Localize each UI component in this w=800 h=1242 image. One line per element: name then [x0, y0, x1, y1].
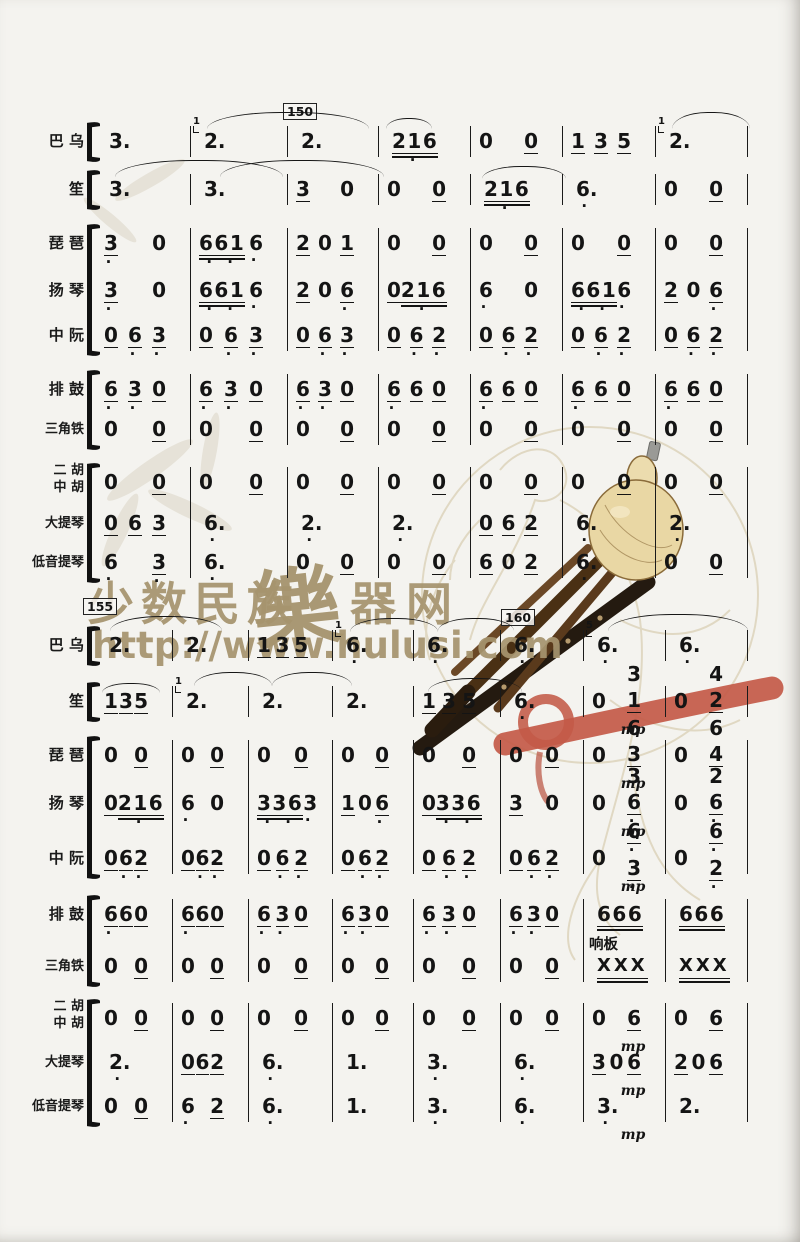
octave-dots: · — [226, 351, 237, 357]
staff-row-datiqin: 0636.·2.·2.·0626.·2.· — [95, 512, 747, 542]
staff-bracket — [87, 740, 92, 874]
measure: 064 — [665, 744, 747, 774]
note-token: 6 — [196, 903, 210, 927]
note-value: 0 — [502, 551, 516, 573]
note-part: 1 — [627, 689, 641, 713]
octave-dots: · — [136, 874, 147, 880]
note-token: 0 — [422, 955, 436, 977]
note-token: 0 — [592, 690, 606, 712]
note-value: 2. — [109, 634, 131, 656]
note-token: 3· — [442, 903, 456, 936]
octave-dots: · — [481, 304, 492, 310]
note-token: 0 — [432, 378, 446, 402]
note-value: 2 — [664, 279, 678, 303]
note-value: 2 — [294, 847, 308, 871]
note-value: 0 — [387, 279, 401, 303]
barline — [500, 740, 501, 874]
note-value: 1. — [346, 1051, 368, 1073]
barline — [562, 467, 563, 578]
note-part: 0 — [422, 744, 436, 766]
note-part: 0 — [181, 955, 195, 977]
note-value: 666 — [679, 903, 725, 927]
measure: 00 — [378, 471, 470, 501]
note-token: 0 — [104, 792, 118, 816]
note-token: 2. — [262, 690, 284, 712]
octave-dots: · — [511, 930, 522, 936]
note-part: 216· — [484, 178, 530, 211]
octave-dots: · — [106, 259, 117, 265]
note-token: 0 — [432, 471, 446, 495]
note-part: 2· — [524, 324, 538, 357]
note-value: 0 — [296, 418, 310, 440]
note-part: 0 — [358, 792, 372, 814]
note-part: 0 — [664, 418, 678, 440]
note-token: 0 — [422, 1007, 436, 1029]
note-part: 6.· — [679, 634, 701, 665]
instrument-label-diyintiqin: 低音提琴 — [14, 1098, 84, 1115]
measure: 3. — [190, 178, 287, 208]
note-part: 0 — [709, 232, 723, 256]
note-part: 2.· — [301, 512, 323, 543]
note-value: 0 — [479, 130, 493, 152]
note-value: 2 — [210, 1095, 224, 1119]
instrument-label-zhongruan: 中 阮 — [14, 327, 84, 344]
note-value: 0 — [104, 512, 118, 536]
instrument-label-pipa: 琵 琶 — [14, 747, 84, 764]
note-value: 6 — [181, 1095, 195, 1117]
note-value: 1. — [346, 1095, 368, 1117]
octave-dots: · — [183, 930, 194, 936]
note-part: 6 — [410, 378, 424, 402]
measure: 6·3·0 — [287, 378, 378, 408]
measure: 661· ·6· — [190, 232, 287, 262]
note-value: 1 — [422, 690, 436, 714]
measure: 00 — [655, 232, 747, 262]
note-value: 6 — [479, 279, 493, 301]
note-value: 2 — [432, 324, 446, 348]
note-value: 6 — [687, 324, 701, 348]
note-value: 6 — [296, 378, 310, 402]
note-value: 3 — [509, 792, 523, 816]
note-part: 0 — [387, 232, 401, 254]
note-token: 6· — [571, 378, 585, 411]
barline — [287, 126, 288, 157]
note-part: 0 — [687, 279, 701, 301]
note-value: 6 — [571, 378, 585, 402]
measure: 306mp — [583, 1051, 665, 1081]
note-part: XXX — [597, 955, 648, 979]
note-value: 3 — [276, 903, 290, 927]
measure: 2. — [95, 634, 172, 664]
note-part: 0 — [340, 418, 354, 442]
note-part: 3 — [594, 130, 608, 154]
note-token: 3 — [509, 792, 523, 816]
note-token: 0 — [181, 1051, 195, 1075]
note-token: 0 — [617, 471, 631, 495]
note-part: 0 — [257, 847, 271, 871]
note-part: 5 — [294, 634, 308, 658]
note-value: 0 — [375, 903, 389, 927]
note-token: 0 — [509, 955, 523, 977]
note-token: 0 — [210, 903, 224, 927]
instrument-label-sheng: 笙 — [14, 693, 84, 710]
note-value: 0 — [509, 955, 523, 977]
measure: 00 — [248, 955, 332, 985]
note-value: XXX — [679, 955, 730, 979]
measure: 00 — [172, 744, 248, 774]
note-token: 3· — [303, 792, 317, 823]
note-token: 0 — [375, 1007, 389, 1031]
note-part: 0 — [134, 1007, 148, 1031]
note-part: 0 — [199, 324, 213, 348]
note-part: 0 — [664, 178, 678, 200]
note-value: 0 — [432, 232, 446, 256]
note-value: 0 — [674, 690, 688, 712]
note-part: 0 — [249, 471, 263, 495]
note-value: 0 — [134, 1007, 148, 1031]
note-token: 0 — [571, 418, 585, 440]
note-value: 3. — [109, 178, 131, 200]
note-value: 3 — [128, 378, 142, 402]
note-value: 6. — [576, 551, 598, 573]
note-token: 6 — [479, 551, 493, 575]
note-value: 2 — [524, 512, 538, 536]
octave-dots: · — [251, 257, 262, 263]
note-part: 2.· — [392, 512, 414, 543]
note-value: 0 — [709, 418, 723, 442]
note-token: 3 — [119, 690, 133, 714]
measure: 00 — [655, 471, 747, 501]
measure: 00 — [332, 744, 413, 774]
note-value: 0 — [387, 324, 401, 348]
note-token: 0 — [181, 955, 195, 977]
note-part: 2· — [709, 324, 723, 357]
note-token: 6· — [442, 847, 456, 880]
note-part: 0 — [479, 418, 493, 440]
octave-dots: · — [547, 874, 558, 880]
note-value: 0 — [571, 418, 585, 440]
instrument-label-sheng: 笙 — [14, 181, 84, 198]
note-value: 0 — [617, 471, 631, 495]
note-value: 1 — [627, 689, 641, 713]
instrument-label-datiqin: 大提琴 — [14, 515, 84, 532]
note-token: 0 — [296, 471, 310, 493]
note-token: 0 — [709, 378, 723, 402]
octave-dots: · — [619, 304, 630, 310]
note-token: 0 — [524, 418, 538, 442]
note-part: 0 — [674, 1007, 688, 1029]
octave-dots: · — [209, 537, 220, 543]
tie-arc — [672, 112, 750, 129]
note-value: 2 — [210, 1051, 224, 1075]
note-value: 6 — [509, 903, 523, 927]
note-part: 0 — [432, 178, 446, 202]
grace-hook — [175, 686, 181, 693]
note-part: 6· — [709, 279, 723, 312]
note-part: 3· — [152, 551, 166, 584]
octave-dots: · — [201, 405, 212, 411]
note-part: 0 — [152, 418, 166, 442]
note-token: 0 — [422, 847, 436, 871]
note-token: 1. — [346, 1095, 368, 1117]
measure: 06·3·mp — [583, 847, 665, 877]
note-value: 0 — [610, 1051, 624, 1073]
note-part: 2· — [134, 847, 148, 880]
note-part: 0 — [104, 418, 118, 440]
note-value: 0 — [709, 378, 723, 402]
note-part: 0 — [375, 903, 389, 927]
note-part: 0 — [210, 955, 224, 979]
note-value: 0 — [134, 744, 148, 768]
note-part: 6 — [627, 1051, 641, 1075]
note-token: 6· — [318, 324, 332, 357]
barline — [747, 740, 748, 874]
note-part: 3· — [152, 324, 166, 357]
note-part: 0 — [509, 847, 523, 871]
note-part: 0 — [571, 232, 585, 254]
note-token: 6.· — [576, 512, 598, 543]
measure: 062 — [172, 1051, 248, 1081]
octave-dots: · — [419, 306, 430, 312]
note-value: 3 — [627, 663, 641, 685]
note-token: 42 — [709, 690, 723, 713]
note-value: 216 — [484, 178, 530, 202]
note-part: 3 — [119, 690, 133, 714]
note-value: 2 — [709, 765, 723, 787]
note-part: 336· · — [436, 792, 482, 825]
note-token: 0 — [104, 418, 118, 440]
measure: 6.· — [248, 1051, 332, 1081]
measure: 00 — [655, 551, 747, 581]
note-token: 6· — [249, 232, 263, 263]
note-part: 0 — [257, 955, 271, 977]
note-part: 0 — [617, 232, 631, 256]
note-value: 0 — [210, 792, 224, 814]
note-part: 6 — [119, 903, 133, 927]
note-token: 0 — [674, 744, 688, 766]
note-value: 2. — [301, 512, 323, 534]
note-value: 2. — [679, 1095, 701, 1117]
note-part: 6· — [664, 378, 678, 411]
note-part: 2 — [210, 1051, 224, 1075]
note-part: 0 — [341, 1007, 355, 1029]
instrument-label-paigu: 排 鼓 — [14, 906, 84, 923]
measure: 6.· — [562, 512, 655, 542]
note-token: 6· — [181, 903, 195, 936]
note-part: 0 — [134, 955, 148, 979]
grace-hook — [658, 126, 664, 133]
octave-dots: · — [432, 659, 443, 665]
note-value: 6 — [709, 1007, 723, 1031]
note-token: 2.1 — [186, 690, 208, 712]
octave-dots: · · — [578, 306, 610, 312]
note-token: 0 — [375, 744, 389, 768]
note-value: 0 — [592, 847, 606, 869]
note-value: XXX — [597, 955, 648, 979]
measure: 00 — [562, 232, 655, 262]
note-value: 6 — [594, 324, 608, 348]
note-part: 0 — [181, 847, 195, 871]
note-value: 0 — [104, 744, 118, 766]
note-value: 6 — [196, 1051, 210, 1075]
measure: 00 — [95, 1007, 172, 1037]
staff-bracket — [87, 228, 92, 351]
note-token: 3.· — [427, 1051, 449, 1082]
note-part: 0 — [294, 744, 308, 768]
note-token: 3· — [249, 324, 263, 357]
staff-row-zhongruan: 06·3·06·3·06·3·06·2·06·2·06·2·06·2· — [95, 324, 747, 354]
barline — [190, 174, 191, 205]
note-value: 0 — [296, 471, 310, 493]
staff-row-yangqin: 0216·6·0336· ·3·106·0336· ·30036·mp026· — [95, 792, 747, 822]
note-value: 0 — [152, 378, 166, 402]
note-part: 0 — [462, 955, 476, 979]
measure: 06·3· — [190, 324, 287, 354]
measure: 3.·mp — [583, 1095, 665, 1125]
note-token: 0 — [104, 1095, 118, 1117]
note-part: 2 — [210, 1095, 224, 1119]
note-token: 6.· — [204, 551, 226, 582]
note-value: 0 — [249, 418, 263, 442]
note-part: 3· — [340, 324, 354, 357]
note-value: 6 — [709, 820, 723, 844]
note-token: 0 — [432, 178, 446, 202]
note-value: 0 — [340, 418, 354, 442]
measure: 00 — [95, 418, 190, 448]
measure: 6·3·0 — [248, 903, 332, 933]
note-part: 0 — [296, 551, 310, 573]
measure: 6.·1 — [332, 634, 413, 664]
measure: 661· ·6· — [562, 279, 655, 309]
note-part: 6· — [358, 847, 372, 880]
note-value: 0 — [664, 232, 678, 254]
note-token: 0 — [709, 178, 723, 202]
note-part: 0 — [462, 903, 476, 927]
note-value: 0 — [296, 324, 310, 348]
note-token: 0 — [387, 551, 401, 573]
staff-row-datiqin: 2.·0626.·1.3.·6.·306mp206 — [95, 1051, 747, 1081]
barline — [287, 374, 288, 445]
measure: 00 — [172, 955, 248, 985]
note-part: 0 — [709, 551, 723, 575]
instrument-label-pipa: 琵 琶 — [14, 235, 84, 252]
note-value: 0 — [249, 471, 263, 495]
note-token: 0 — [341, 955, 355, 977]
note-token: 2 — [210, 1095, 224, 1119]
note-value: 0 — [340, 378, 354, 402]
note-token: 0 — [509, 1007, 523, 1029]
note-value: 1 — [104, 690, 118, 714]
measure: 336· ·3· — [248, 792, 332, 822]
note-part: 6.· — [427, 634, 449, 665]
note-value: 0 — [571, 324, 585, 348]
note-token: 0 — [104, 512, 118, 536]
note-value: 6 — [276, 847, 290, 871]
note-part: 0 — [509, 955, 523, 977]
note-value: 0 — [375, 744, 389, 768]
note-value: 6 — [224, 324, 238, 348]
measure: 00 — [287, 418, 378, 448]
note-value: 1 — [341, 792, 355, 816]
grace-note: 5 — [586, 621, 593, 637]
note-value: 0 — [199, 324, 213, 348]
measure: 00 — [378, 232, 470, 262]
note-part: 1 — [422, 690, 436, 714]
measure: 30 — [500, 792, 583, 822]
note-part: 0 — [340, 471, 354, 495]
octave-dots: · — [114, 1076, 125, 1082]
note-value: 3 — [104, 232, 118, 256]
note-value: 216 — [401, 279, 447, 303]
note-token: 0 — [249, 471, 263, 495]
note-value: 6 — [128, 324, 142, 348]
note-token: 0 — [375, 903, 389, 927]
measure: 6.· — [500, 1051, 583, 1081]
note-value: 3 — [276, 634, 290, 658]
note-value: 3 — [224, 378, 238, 402]
note-token: 6· — [664, 378, 678, 411]
octave-dots: · — [183, 1120, 194, 1126]
octave-dots: · — [298, 405, 309, 411]
note-part: 6· — [257, 903, 271, 936]
note-value: 6 — [181, 903, 195, 927]
measure: 00 — [655, 178, 747, 208]
measure: 2. — [287, 130, 378, 160]
note-value: 6 — [709, 791, 723, 815]
note-part: 6.· — [597, 634, 619, 665]
note-part: 3· — [104, 279, 118, 312]
note-token: 6· — [709, 279, 723, 312]
measure: 2. — [248, 690, 332, 720]
note-part: 0 — [318, 232, 332, 254]
measure: 06·2· — [378, 324, 470, 354]
grace-hook — [335, 630, 341, 637]
barline — [413, 740, 414, 874]
octave-dots: · — [306, 537, 317, 543]
tie-arc — [194, 672, 272, 686]
note-value: 0 — [432, 418, 446, 442]
barline — [287, 228, 288, 351]
barline — [665, 899, 666, 982]
octave-dots: · · — [206, 306, 238, 312]
note-part: 2· — [709, 857, 723, 890]
note-value: 0 — [104, 792, 118, 816]
note-value: 6 — [410, 378, 424, 402]
note-token: 0 — [524, 130, 538, 154]
note-value: 0 — [674, 744, 688, 766]
instrument-label-zhongruan: 中 阮 — [14, 850, 84, 867]
measure: 06·2· — [470, 324, 562, 354]
note-value: 0 — [341, 1007, 355, 1029]
note-part: 0 — [674, 847, 688, 869]
note-token: 3· — [128, 378, 142, 411]
note-part: 0 — [432, 471, 446, 495]
octave-dots: · — [360, 930, 371, 936]
octave-dots: · — [106, 405, 117, 411]
note-part: 3· — [527, 903, 541, 936]
note-value: 6 — [479, 551, 493, 575]
note-token: 6.· — [514, 1095, 536, 1126]
note-value: 6 — [387, 378, 401, 402]
octave-dots: · — [251, 304, 262, 310]
note-value: 2 — [709, 689, 723, 713]
note-part: 0 — [432, 551, 446, 575]
note-value: 0 — [104, 847, 118, 871]
note-value: 0 — [617, 378, 631, 402]
note-part: 0 — [617, 418, 631, 442]
note-value: 6. — [204, 512, 226, 534]
note-value: 2 — [709, 857, 723, 881]
